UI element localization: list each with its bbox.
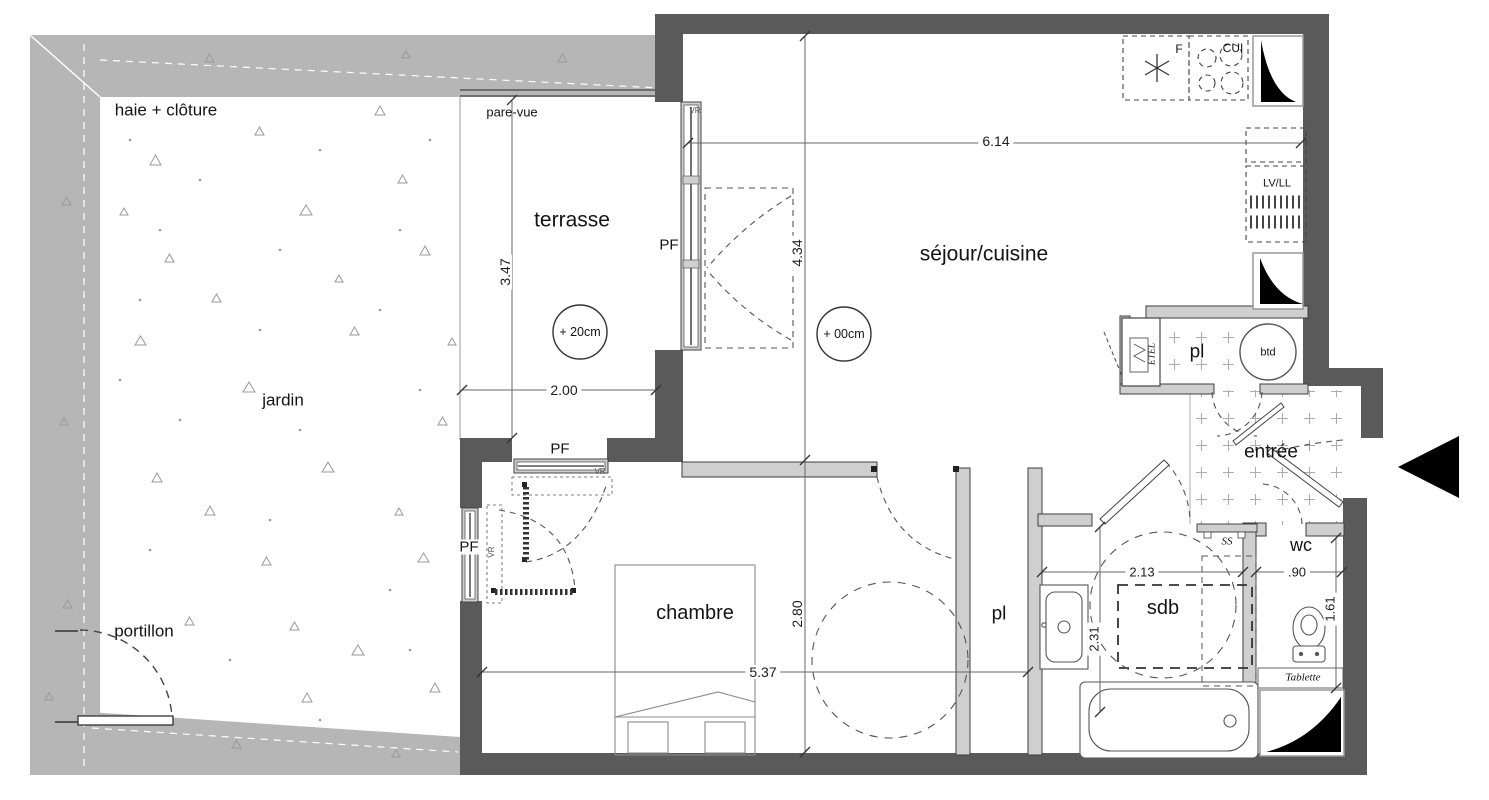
- room-label-closet-entry: pl: [1190, 343, 1205, 362]
- dim-terrasse-depth: 3.47: [498, 254, 512, 289]
- gate-label: portillon: [114, 623, 174, 640]
- water-heater-label: btd: [1260, 348, 1275, 359]
- laundry-hatch: [1250, 202, 1302, 222]
- window-label-pf-terrasse: PF: [659, 238, 678, 253]
- dim-terrasse-width: 2.00: [546, 383, 581, 397]
- level-sejour: + 00cm: [823, 328, 864, 341]
- shutter-label-vr: VR: [488, 546, 496, 557]
- towel-dryer-label: SS: [1222, 537, 1233, 548]
- dim-sejour-width: 6.14: [978, 134, 1013, 148]
- screen-label: pare-vue: [486, 106, 537, 119]
- window-label-pf-chambre: PF: [457, 540, 480, 555]
- bed: [615, 565, 755, 755]
- shutter-label-vr: VR: [594, 468, 605, 476]
- floor-plan-drawing: [0, 0, 1489, 800]
- dim-sdb-depth: 2.31: [1088, 622, 1101, 655]
- shelf-label: Tablette: [1285, 673, 1320, 684]
- room-label-closet-hall: pl: [992, 605, 1007, 624]
- fridge-star-icon: [1145, 54, 1169, 82]
- garden-label: jardin: [262, 392, 304, 409]
- dim-wc-width: .90: [1284, 566, 1310, 579]
- laundry-label: LV/LL: [1261, 179, 1293, 190]
- room-label-wc: wc: [1290, 536, 1312, 554]
- cooktop-label: CUI: [1223, 42, 1244, 54]
- dim-wc-depth: 1.61: [1324, 592, 1337, 625]
- fridge-label: F: [1175, 43, 1182, 55]
- dim-chambre-width: 5.37: [745, 665, 780, 679]
- garden-hedge-band: [30, 35, 662, 775]
- room-label-sdb: sdb: [1144, 598, 1182, 618]
- room-label-chambre: chambre: [656, 603, 734, 623]
- shutter-rails: [495, 487, 573, 592]
- door-hinge-marks: [491, 466, 959, 593]
- hedge-label: haie + clôture: [115, 102, 218, 119]
- window-label-pf-terrasse-south: PF: [548, 442, 571, 457]
- garden-speckles: [45, 51, 567, 757]
- entrance-arrow-icon: [1398, 436, 1459, 498]
- room-label-sejour: séjour/cuisine: [920, 244, 1048, 265]
- room-label-entree: entrée: [1244, 443, 1298, 462]
- shutter-label-vr: VR: [689, 107, 700, 115]
- dim-chambre-depth: 2.80: [790, 596, 804, 631]
- dim-sejour-depth: 4.34: [790, 235, 804, 270]
- floor-plan-page: haie + clôture jardin portillon pare-vue…: [0, 0, 1489, 800]
- etel-label: ETEL: [1148, 343, 1158, 365]
- level-terrasse: + 20cm: [559, 326, 600, 339]
- room-label-terrasse: terrasse: [534, 210, 610, 231]
- dim-sdb-width: 2.13: [1125, 566, 1158, 579]
